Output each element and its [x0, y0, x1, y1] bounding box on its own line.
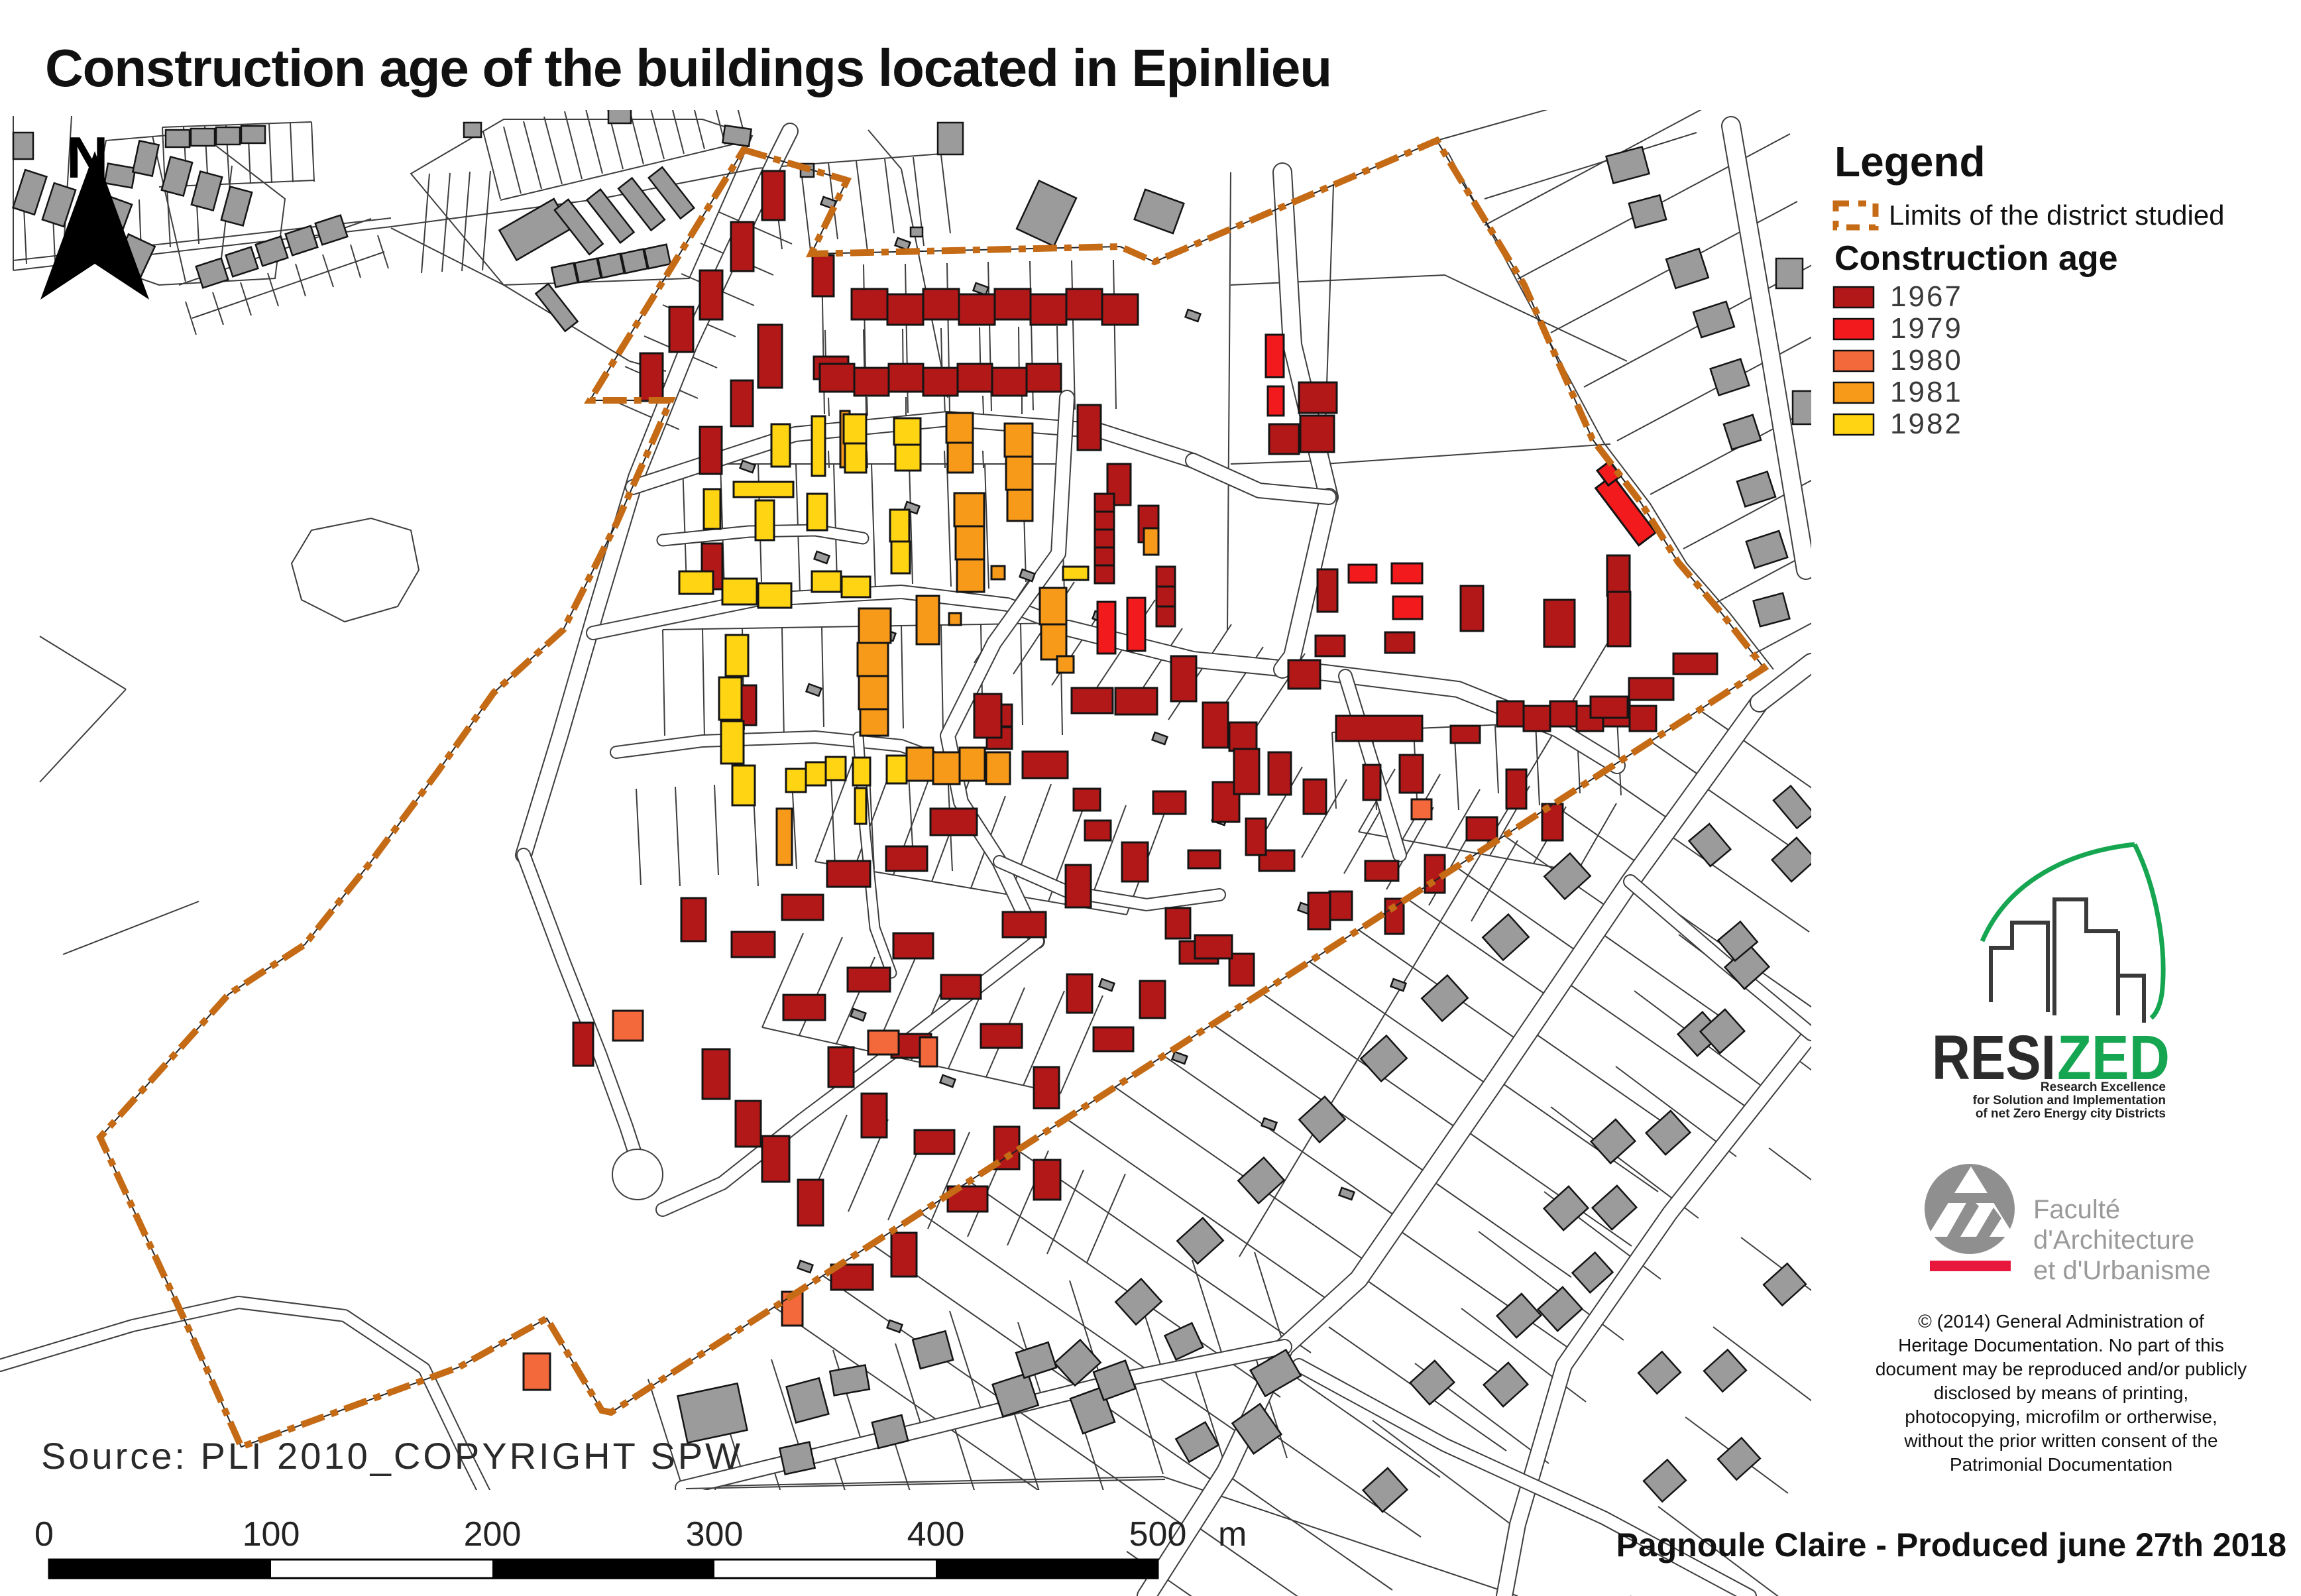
svg-text:1980: 1980: [1890, 344, 1963, 376]
svg-text:0: 0: [34, 1515, 54, 1554]
svg-text:disclosed by means of printing: disclosed by means of printing,: [1934, 1383, 2188, 1403]
svg-text:Heritage Documentation. No par: Heritage Documentation. No part of this: [1898, 1335, 2224, 1355]
svg-text:N: N: [66, 125, 109, 190]
svg-text:100: 100: [243, 1515, 300, 1554]
svg-text:of net Zero Energy city Distri: of net Zero Energy city Districts: [1976, 1107, 2166, 1121]
svg-text:© (2014) General Administ: © (2014) General Administration of: [1918, 1311, 2204, 1332]
svg-text:photocopying, microfilm or ort: photocopying, microfilm or ortherwise,: [1905, 1406, 2217, 1427]
svg-text:300: 300: [686, 1515, 744, 1554]
svg-text:Source: PLI 2010_COPYRIGHT SPW: Source: PLI 2010_COPYRIGHT SPW: [41, 1435, 743, 1477]
svg-text:et d'Urbanisme: et d'Urbanisme: [2033, 1256, 2211, 1285]
svg-text:Faculté: Faculté: [2033, 1195, 2120, 1224]
svg-text:Limits of the district studied: Limits of the district studied: [1889, 199, 2225, 231]
svg-text:Research Excellence: Research Excellence: [2041, 1080, 2166, 1094]
svg-text:1982: 1982: [1890, 408, 1963, 440]
svg-text:Patrimonial Documentation: Patrimonial Documentation: [1950, 1454, 2172, 1475]
svg-text:Construction age: Construction age: [1834, 239, 2118, 278]
svg-text:1981: 1981: [1890, 376, 1963, 408]
svg-text:1979: 1979: [1890, 312, 1963, 345]
svg-text:Construction age of the buildi: Construction age of the buildings locate…: [45, 38, 1331, 97]
svg-text:RESI: RESI: [1932, 1023, 2056, 1093]
svg-text:500: 500: [1129, 1515, 1187, 1554]
svg-text:1967: 1967: [1890, 280, 1963, 313]
svg-text:400: 400: [907, 1515, 965, 1554]
svg-text:Pagnoule Claire - Produced jun: Pagnoule Claire - Produced june 27th 201…: [1616, 1526, 2286, 1564]
svg-text:without the prior written cons: without the prior written consent of the: [1903, 1430, 2217, 1451]
svg-text:Legend: Legend: [1834, 138, 1986, 186]
svg-text:document may be reproduced and: document may be reproduced and/or public…: [1876, 1359, 2247, 1379]
svg-text:m: m: [1218, 1515, 1247, 1554]
svg-text:d'Architecture: d'Architecture: [2033, 1225, 2194, 1255]
svg-text:200: 200: [464, 1515, 522, 1554]
svg-text:for Solution and Implementatio: for Solution and Implementation: [1973, 1094, 2166, 1108]
